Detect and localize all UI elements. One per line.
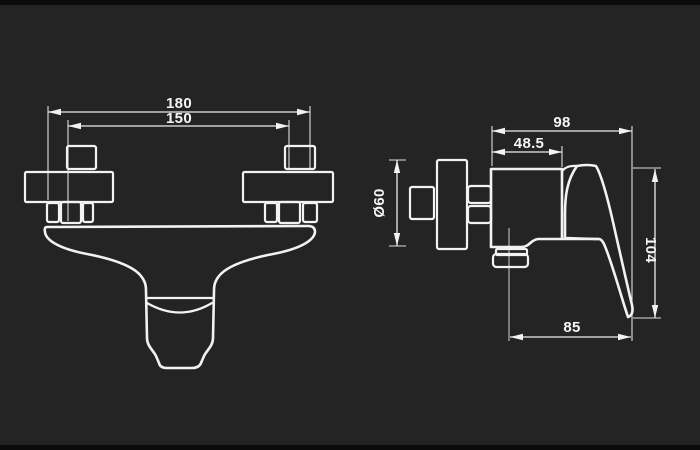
dim-label-height-total: 104	[642, 237, 659, 263]
dim-label-depth-body: 48.5	[514, 135, 544, 152]
dim-arrow	[618, 334, 631, 341]
dim-arrow	[652, 169, 658, 182]
dim-arrow	[48, 109, 61, 116]
right-union-nut-facet	[265, 203, 277, 222]
left-union-nut	[61, 202, 81, 223]
left-union-flange	[25, 172, 113, 202]
dim-arrow	[510, 334, 523, 341]
technical-drawing-canvas: 180 150	[0, 0, 700, 450]
dim-label-flange-diameter: Ø60	[371, 188, 388, 217]
right-union-nut-facet	[303, 203, 317, 222]
dim-arrow	[619, 128, 632, 135]
side-view: 98 48.5 Ø60 104 85	[371, 114, 661, 341]
lever-handle-side	[565, 165, 633, 317]
right-union-nut	[279, 202, 300, 223]
dim-arrow	[276, 123, 289, 130]
technical-drawing-page: 180 150	[0, 0, 700, 450]
dim-arrow	[68, 123, 81, 130]
dim-label-depth-total: 98	[553, 114, 570, 131]
side-nut-lower-facet	[468, 206, 491, 223]
dim-arrow	[394, 160, 400, 173]
side-union-flange	[437, 160, 467, 249]
side-nut-upper-facet	[468, 186, 491, 203]
dim-label-reach-bottom: 85	[563, 319, 580, 336]
dim-arrow	[297, 109, 310, 116]
dim-label-width-centers: 150	[166, 110, 192, 127]
dim-arrow	[492, 149, 505, 156]
dim-arrow	[492, 128, 505, 135]
side-union-body	[410, 187, 434, 219]
dim-arrow	[394, 233, 400, 246]
left-union-nut-facet	[47, 203, 59, 222]
front-view: 180 150	[25, 95, 333, 368]
left-union-nut-facet	[83, 203, 93, 222]
left-union-adapter	[67, 146, 96, 169]
spout-collar-arc	[147, 303, 212, 313]
right-union-flange	[243, 172, 333, 202]
dim-arrow	[549, 149, 562, 156]
mixer-body-side	[491, 169, 597, 247]
dim-arrow	[652, 305, 658, 318]
